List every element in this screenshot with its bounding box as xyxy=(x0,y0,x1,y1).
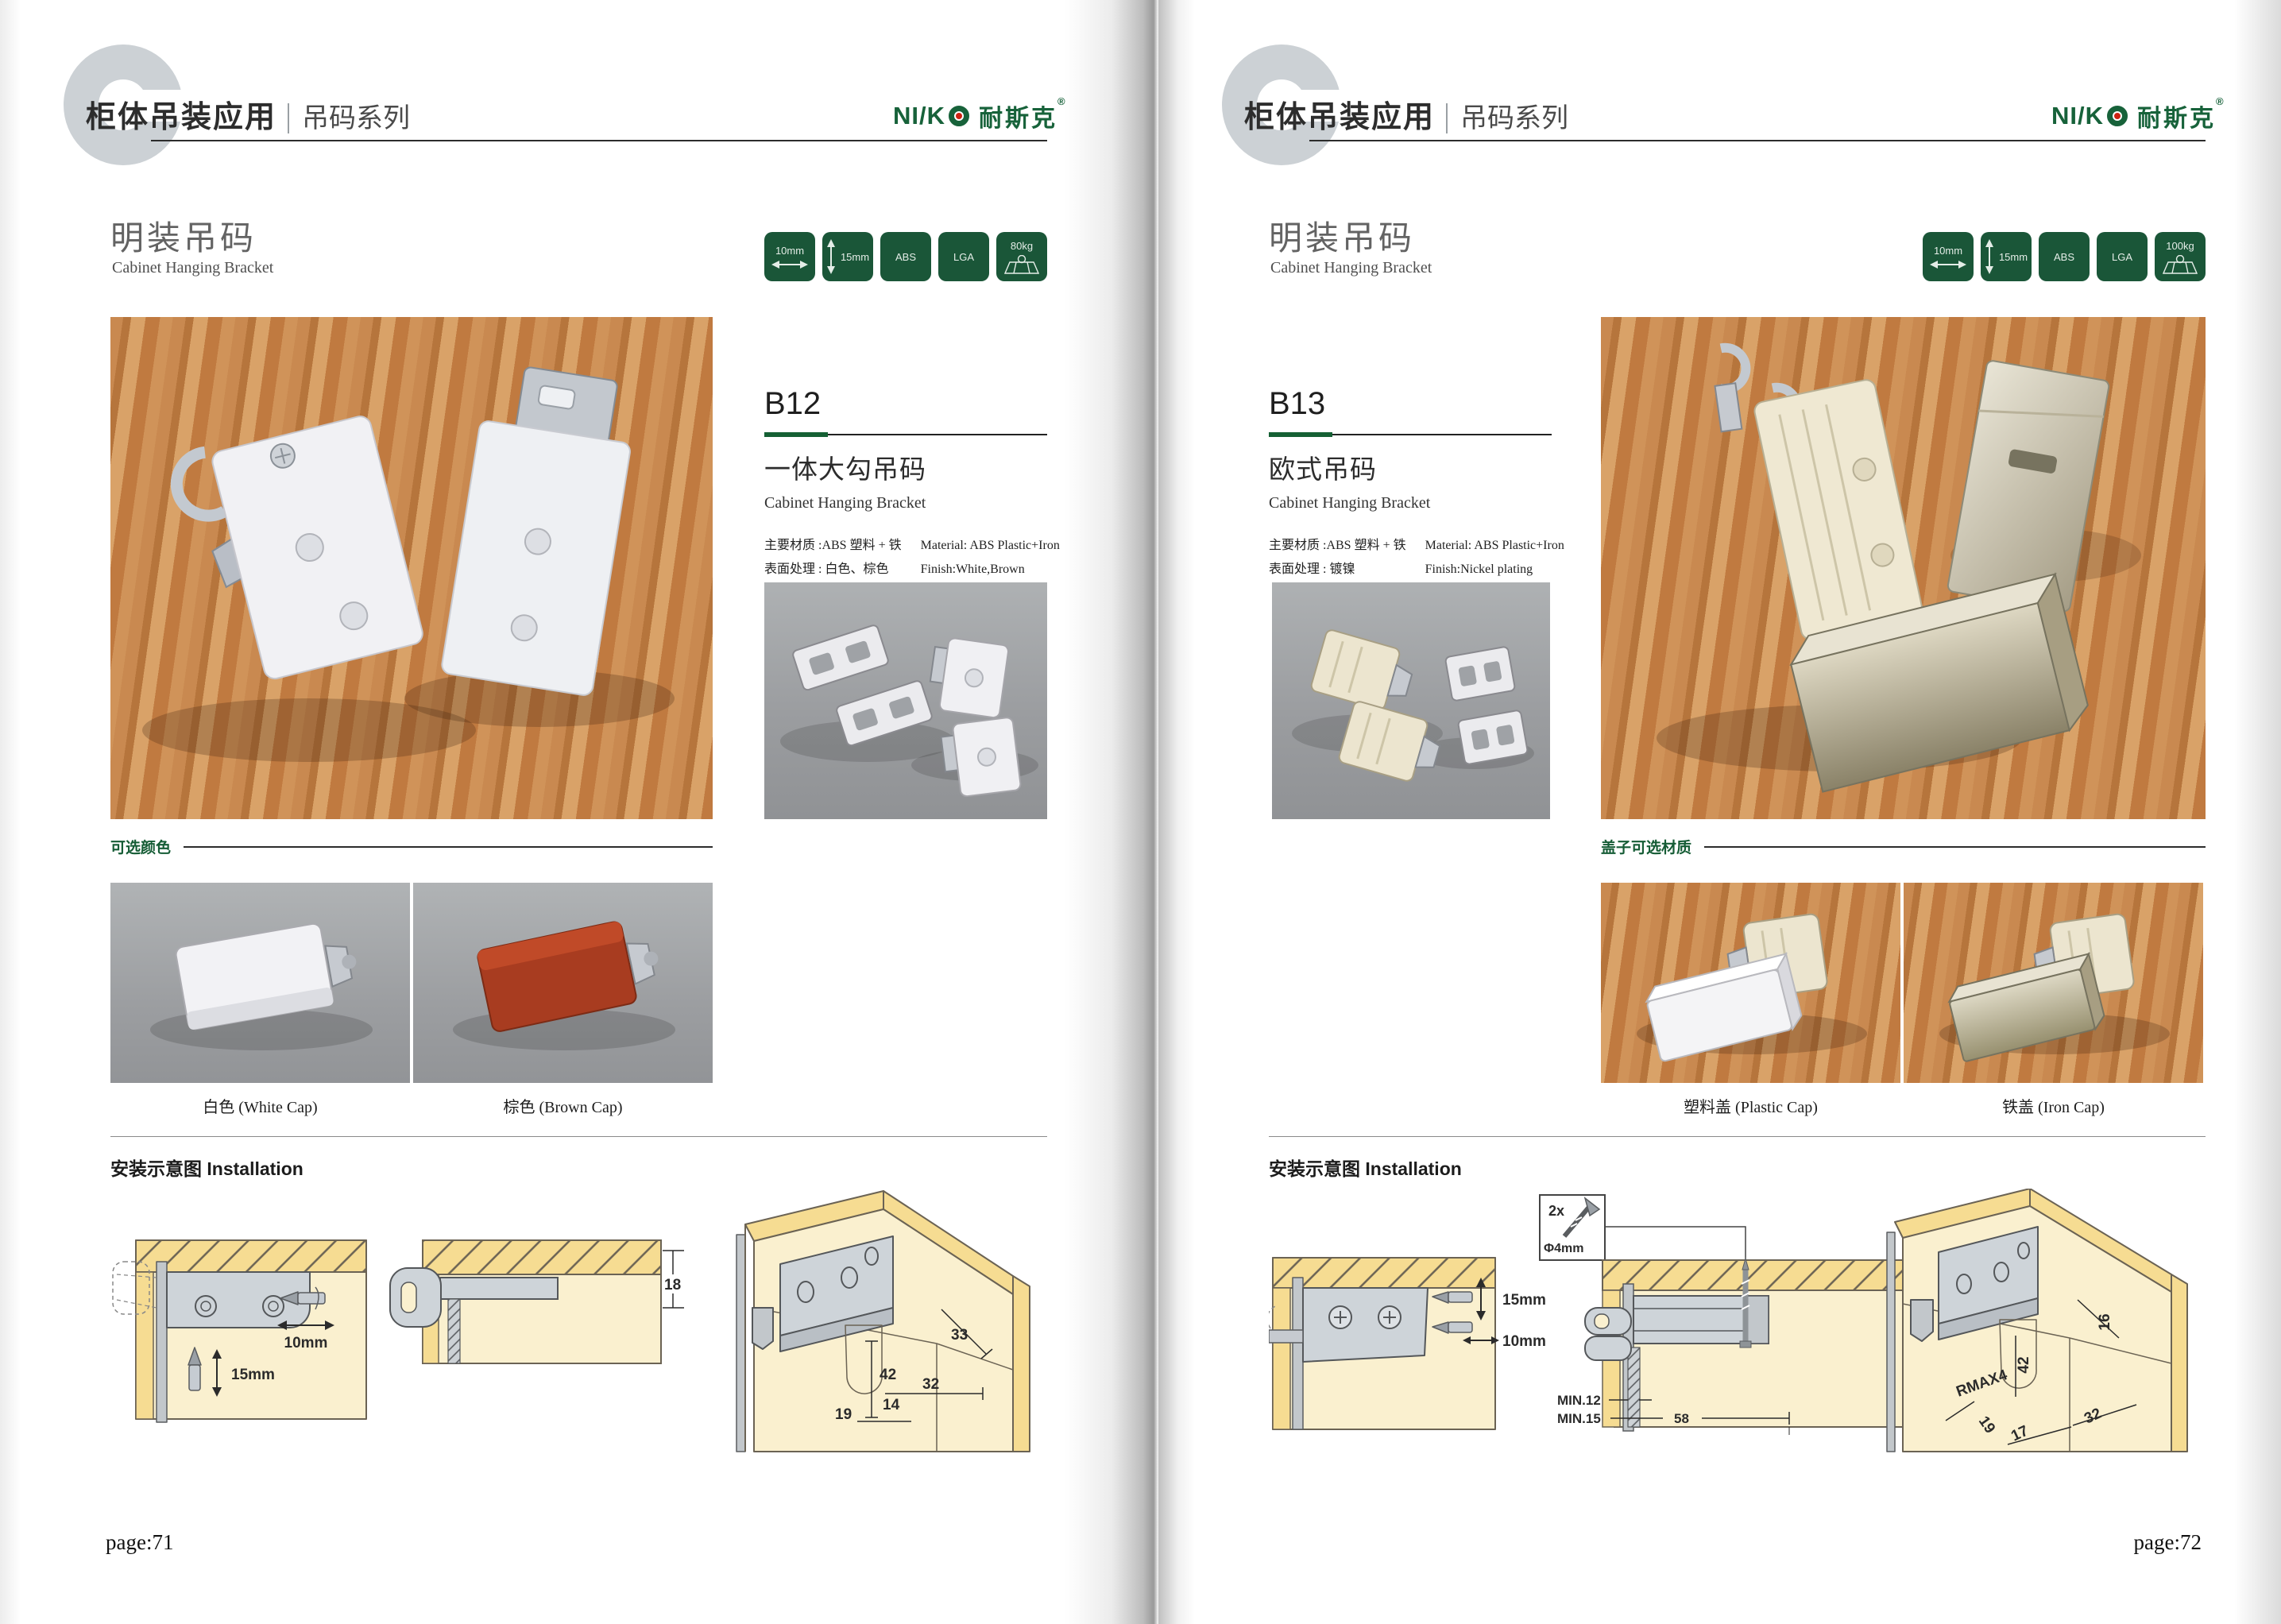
option-caption-iron: 铁盖 (Iron Cap) xyxy=(1904,1094,2203,1117)
spec-badges: 10mm 15mm ABS LGA 80kg xyxy=(764,232,1047,281)
spec-badges: 10mm 15mm ABS LGA 100kg xyxy=(1923,232,2206,281)
spec-finish-cn: 表面处理 : 镀镍 xyxy=(1269,558,1406,582)
product-specs: 主要材质 :ABS 塑料 + 铁 表面处理 : 白色、棕色 Material: … xyxy=(764,534,1047,582)
spec-badge-width: 10mm xyxy=(764,232,815,281)
spec-material-cn: 主要材质 :ABS 塑料 + 铁 xyxy=(764,534,902,558)
spec-material-cn: 主要材质 :ABS 塑料 + 铁 xyxy=(1269,534,1406,558)
diagram-front-section: 10mm 15mm xyxy=(113,1240,366,1422)
logo-latin: NI/K xyxy=(2051,102,2104,130)
catalog-page-right: 柜体吊装应用吊码系列 NI/K 耐斯克 ® 明装吊码 Cabinet Hangi… xyxy=(1158,0,2281,1624)
brand-logo: NI/K 耐斯克 ® xyxy=(2051,99,2224,133)
diagram-side-section: 18 MIN.12 MIN.15 58 xyxy=(1557,1259,1958,1435)
diagram-side-section: 18 xyxy=(390,1240,684,1363)
section-title-en: Cabinet Hanging Bracket xyxy=(1270,259,1432,277)
product-code: B13 xyxy=(1269,386,1552,422)
dim-42: 42 xyxy=(2016,1356,2032,1373)
spec-badge-material: ABS xyxy=(880,232,931,281)
dim-32: 32 xyxy=(922,1376,939,1393)
product-name-en: Cabinet Hanging Bracket xyxy=(1269,494,1552,512)
bracket-part xyxy=(926,636,1009,718)
screw-callout: 2x Φ4mm xyxy=(1540,1195,1746,1266)
header-series: 吊码系列 xyxy=(288,103,410,133)
dim-19: 19 xyxy=(835,1406,852,1423)
rail-part xyxy=(1445,646,1516,701)
page-header: 柜体吊装应用吊码系列 xyxy=(86,92,410,136)
dimension-width: 10mm xyxy=(277,1320,334,1351)
product-name-en: Cabinet Hanging Bracket xyxy=(764,494,1047,512)
diagram-cabinet-perspective: 16 42 RMAX4 19 17 32 xyxy=(1887,1189,2187,1452)
product-photo-b12 xyxy=(110,317,713,819)
spec-finish-en: Finish:White,Brown xyxy=(921,558,1060,582)
width-arrow-icon xyxy=(771,260,808,269)
spec-badge-width: 10mm xyxy=(1923,232,1974,281)
registered-mark: ® xyxy=(2216,95,2224,107)
product-name-cn: 欧式吊码 xyxy=(1269,448,1552,486)
logo-o-icon xyxy=(949,106,969,126)
spec-badge-material: ABS xyxy=(2039,232,2090,281)
page-header: 柜体吊装应用吊码系列 xyxy=(1244,92,1568,136)
header-rule xyxy=(1309,140,2206,141)
diagram-cabinet-perspective: 33 42 32 14 19 xyxy=(736,1191,1030,1452)
dim-16: 16 xyxy=(2097,1313,2113,1330)
logo-chinese: 耐斯克 xyxy=(2137,99,2216,133)
product-name-cn: 一体大勾吊码 xyxy=(764,448,1047,486)
svg-text:18: 18 xyxy=(664,1277,681,1293)
height-arrow-icon xyxy=(1985,239,1994,274)
dim-33: 33 xyxy=(951,1327,968,1344)
diagram-front-section: 15mm 10mm xyxy=(1269,1258,1546,1429)
section-title-en: Cabinet Hanging Bracket xyxy=(112,259,273,277)
product-info: B13 欧式吊码 Cabinet Hanging Bracket 主要材质 :A… xyxy=(1269,386,1552,582)
installation-rule xyxy=(110,1136,1047,1137)
installation-diagrams-b12: 10mm 15mm xyxy=(110,1189,1048,1522)
load-capacity-icon xyxy=(2163,255,2198,274)
installation-title: 安装示意图 Installation xyxy=(1269,1154,1462,1181)
section-title-cn: 明装吊码 xyxy=(1269,211,1415,260)
brand-logo: NI/K 耐斯克 ® xyxy=(893,99,1065,133)
svg-text:10mm: 10mm xyxy=(284,1335,328,1351)
product-rule xyxy=(1269,432,1552,437)
catalog-page-left: 柜体吊装应用吊码系列 NI/K 耐斯克 ® 明装吊码 Cabinet Hangi… xyxy=(0,0,1158,1624)
logo-latin: NI/K xyxy=(893,102,945,130)
load-capacity-icon xyxy=(1004,255,1039,274)
rail-part xyxy=(792,624,890,691)
spec-material-en: Material: ABS Plastic+Iron xyxy=(1425,534,1564,558)
spec-badge-lga: LGA xyxy=(2097,232,2148,281)
height-arrow-icon xyxy=(826,239,836,274)
spec-badge-lga: LGA xyxy=(938,232,989,281)
spec-badge-height: 15mm xyxy=(1981,232,2032,281)
option-caption-white: 白色 (White Cap) xyxy=(110,1094,410,1117)
bracket-ivory xyxy=(1753,378,1923,641)
header-title: 柜体吊装应用 xyxy=(1244,101,1435,134)
header-title: 柜体吊装应用 xyxy=(86,101,276,134)
option-photo-iron xyxy=(1904,883,2203,1083)
bracket-white-right xyxy=(441,361,641,696)
options-label: 盖子可选材质 xyxy=(1601,836,1691,857)
svg-text:15mm: 15mm xyxy=(1502,1292,1546,1309)
dim-58: 58 xyxy=(1674,1411,1689,1426)
registered-mark: ® xyxy=(1057,95,1065,107)
svg-text:10mm: 10mm xyxy=(1502,1333,1546,1350)
screw-diameter: Φ4mm xyxy=(1544,1242,1583,1255)
options-rule xyxy=(184,846,713,848)
dim-min15: MIN.15 xyxy=(1557,1411,1601,1426)
options-rule xyxy=(1704,846,2206,848)
svg-text:15mm: 15mm xyxy=(231,1367,275,1383)
cap-material-options: 盖子可选材质 xyxy=(1601,836,2206,1118)
option-caption-plastic: 塑料盖 (Plastic Cap) xyxy=(1601,1094,1900,1117)
installation-title: 安装示意图 Installation xyxy=(110,1154,303,1181)
options-label: 可选颜色 xyxy=(110,836,171,857)
spec-badge-height: 15mm xyxy=(822,232,873,281)
product-specs: 主要材质 :ABS 塑料 + 铁 表面处理 : 镀镍 Material: ABS… xyxy=(1269,534,1552,582)
product-code: B12 xyxy=(764,386,1047,422)
logo-o-icon xyxy=(2107,106,2128,126)
parts-photo-b12 xyxy=(764,582,1047,819)
dim-42: 42 xyxy=(880,1367,896,1383)
page-number: page:71 xyxy=(106,1530,173,1555)
bracket-part xyxy=(940,717,1022,798)
spec-badge-load: 100kg xyxy=(2155,232,2206,281)
page-number: page:72 xyxy=(2134,1530,2202,1555)
product-info: B12 一体大勾吊码 Cabinet Hanging Bracket 主要材质 … xyxy=(764,386,1047,582)
spec-finish-en: Finish:Nickel plating xyxy=(1425,558,1564,582)
option-photo-plastic xyxy=(1601,883,1900,1083)
logo-chinese: 耐斯克 xyxy=(979,99,1057,133)
hanger-hooks xyxy=(1710,345,1754,431)
product-rule xyxy=(764,432,1047,437)
spec-material-en: Material: ABS Plastic+Iron xyxy=(921,534,1060,558)
dimension-thickness: 18 xyxy=(663,1251,684,1308)
width-arrow-icon xyxy=(1930,260,1966,269)
product-photo-b13 xyxy=(1601,317,2206,819)
option-photo-brown xyxy=(413,883,713,1083)
color-options: 可选颜色 xyxy=(110,836,713,1118)
header-rule xyxy=(151,140,1047,141)
screw-qty: 2x xyxy=(1548,1203,1564,1219)
bracket-part xyxy=(1338,700,1445,787)
dim-14: 14 xyxy=(883,1397,900,1413)
header-series: 吊码系列 xyxy=(1446,103,1568,133)
option-photo-white xyxy=(110,883,410,1083)
installation-rule xyxy=(1269,1136,2206,1137)
dim-min12: MIN.12 xyxy=(1557,1393,1601,1408)
bracket-white-left xyxy=(170,412,425,691)
installation-diagrams-b13: 15mm 10mm 2x Φ4mm xyxy=(1269,1189,2206,1522)
section-title-cn: 明装吊码 xyxy=(110,211,257,260)
option-caption-brown: 棕色 (Brown Cap) xyxy=(413,1094,713,1117)
spec-badge-load: 80kg xyxy=(996,232,1047,281)
parts-photo-b13 xyxy=(1272,582,1550,819)
spec-finish-cn: 表面处理 : 白色、棕色 xyxy=(764,558,902,582)
